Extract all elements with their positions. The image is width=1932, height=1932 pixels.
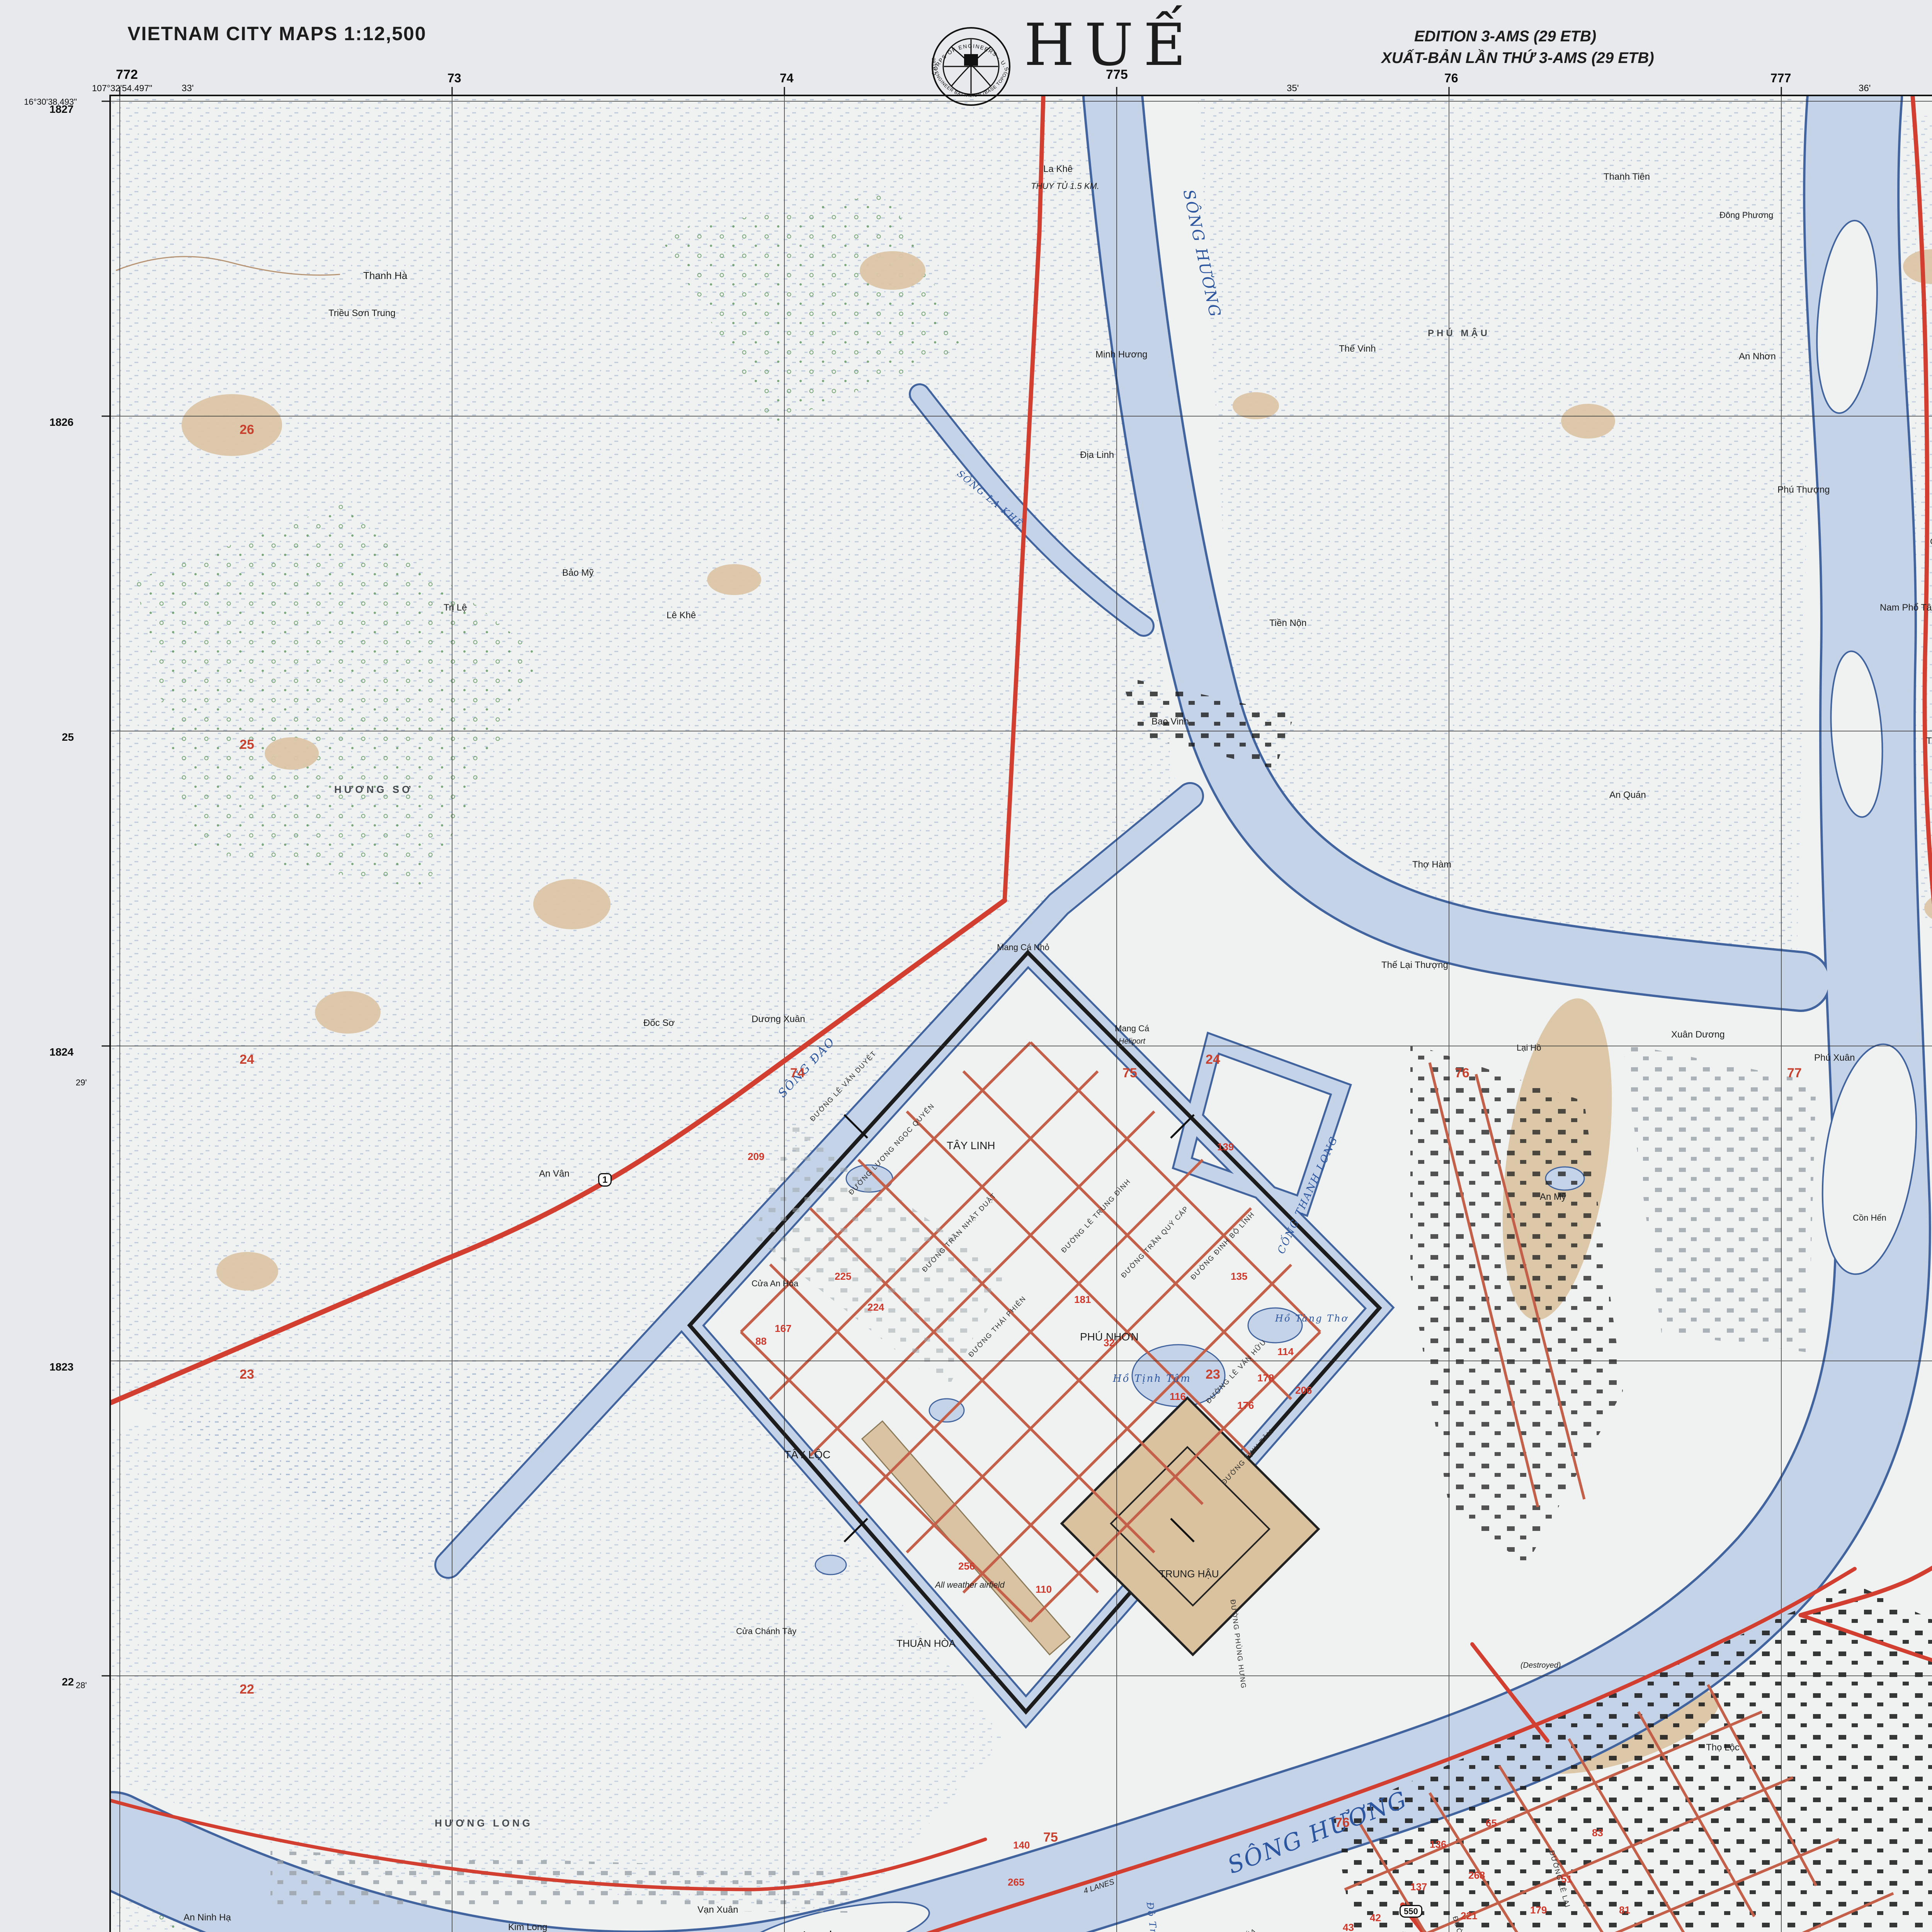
- map-label: 110: [1036, 1584, 1052, 1595]
- map-label: 76: [1455, 1066, 1469, 1080]
- map-label: TÂY LỘC: [784, 1449, 830, 1460]
- map-label: 36': [1859, 83, 1871, 93]
- map-label: 136: [1430, 1839, 1446, 1850]
- map-label: THUY TỦ 1.5 KM.: [1031, 182, 1099, 190]
- map-label: 65: [1486, 1818, 1497, 1828]
- map-label: 23: [240, 1368, 254, 1382]
- map-label: 74: [790, 1066, 805, 1080]
- map-label: An Vân: [539, 1169, 570, 1179]
- map-label: 225: [835, 1271, 851, 1282]
- map-label: HƯƠNG LONG: [435, 1818, 533, 1828]
- map-label: 77: [1787, 1066, 1802, 1080]
- map-label: 209: [748, 1151, 764, 1162]
- map-label: 76: [1335, 1816, 1350, 1830]
- map-label: 772: [116, 68, 138, 82]
- map-label: 51: [1561, 1874, 1572, 1884]
- map-label: Cửa Chánh Tây: [736, 1627, 796, 1636]
- map-label: HƯƠNG SƠ: [334, 784, 413, 795]
- map-label: Minh Hương: [1095, 350, 1148, 359]
- map-label: Thọ Lộc: [1706, 1743, 1740, 1752]
- map-label: 81: [1619, 1905, 1630, 1915]
- map-label: Thế Vinh: [1339, 344, 1376, 354]
- map-label: 1827: [49, 104, 73, 115]
- map-label: 777: [1770, 72, 1791, 85]
- map-label: Tây Thượng: [1926, 736, 1932, 746]
- map-label: 33': [182, 83, 194, 93]
- map-label: THUẬN HÒA: [896, 1638, 956, 1649]
- map-label: An Nhơn: [1739, 352, 1776, 361]
- map-label: TÂY LINH: [947, 1140, 995, 1151]
- map-label: Lại Hồ: [1517, 1043, 1541, 1052]
- map-label: 268: [1468, 1870, 1485, 1881]
- map-label: Dương Xuân: [752, 1014, 805, 1024]
- map-sheet: CORPS OF ENGINEERS · U.S. ARMY 29TH ENGI…: [0, 0, 1932, 1932]
- map-label: TRUNG HẬU: [1159, 1569, 1219, 1579]
- map-label: Thợ Hàm: [1412, 860, 1451, 869]
- map-label: 135: [1231, 1271, 1247, 1282]
- map-label: 176: [1237, 1400, 1254, 1411]
- map-label: 83: [1592, 1828, 1603, 1838]
- map-label: Phú Xuân: [1814, 1053, 1855, 1063]
- map-label: All weather airfield: [935, 1580, 1005, 1589]
- map-label: An Ninh Hạ: [184, 1913, 231, 1922]
- map-label: Cửa An Hòa: [752, 1279, 798, 1288]
- map-label: 1826: [49, 417, 73, 428]
- map-label: Xuân Dương: [1671, 1030, 1725, 1039]
- map-label: 32: [1104, 1338, 1115, 1348]
- map-label: Mang Cá: [1115, 1024, 1149, 1033]
- edition-note-vi: XUẤT-BẢN LẦN THỨ 3-AMS (29 ETB): [1381, 49, 1654, 67]
- map-label: 88: [755, 1336, 767, 1347]
- map-label: Tiền Nộn: [1269, 618, 1307, 628]
- map-label: Trị Lệ: [444, 603, 467, 612]
- map-label: 550: [1400, 1905, 1422, 1918]
- map-label: 29': [76, 1078, 87, 1087]
- map-label: 24: [240, 1053, 254, 1067]
- map-label: 24: [1206, 1053, 1220, 1067]
- map-label: La Khê: [1043, 164, 1073, 174]
- map-label: Đông Phương: [1719, 211, 1773, 219]
- map-label: 1824: [49, 1046, 73, 1058]
- map-label: 221: [1461, 1911, 1477, 1921]
- map-label: Kim Long: [508, 1922, 547, 1932]
- map-label: 265: [1008, 1877, 1024, 1888]
- map-label: 139: [1217, 1142, 1234, 1152]
- map-label: An Quán: [1609, 790, 1646, 800]
- map-label: 1823: [49, 1361, 73, 1372]
- map-label: Lê Khê: [667, 611, 696, 620]
- map-label: Vạn Xuân: [697, 1905, 738, 1915]
- map-label: 22: [62, 1676, 74, 1687]
- map-label: Mang Cá Nhỏ: [997, 943, 1049, 952]
- map-label: 114: [1277, 1347, 1294, 1357]
- sheet-series-title: VIETNAM CITY MAPS 1:12,500: [128, 22, 427, 45]
- map-label: 206: [1295, 1385, 1312, 1396]
- map-label: 75: [1122, 1066, 1137, 1080]
- map-label: 42: [1370, 1913, 1381, 1923]
- map-label: 75: [1043, 1831, 1058, 1845]
- map-label: 256: [958, 1561, 975, 1571]
- map-label: 137: [1410, 1882, 1427, 1892]
- map-label: Bảo Mỹ: [562, 568, 594, 578]
- map-label: Nam Phổ Tây: [1880, 603, 1932, 612]
- map-label: 26: [240, 423, 254, 437]
- map-label: 35': [1287, 83, 1299, 93]
- map-label: Thế Lại Thượng: [1381, 960, 1448, 970]
- map-graphics: CORPS OF ENGINEERS · U.S. ARMY 29TH ENGI…: [0, 0, 1932, 1932]
- map-label: 775: [1106, 68, 1128, 82]
- map-label: 116: [1170, 1391, 1186, 1402]
- map-label: Hồ Tàng Thơ: [1275, 1314, 1348, 1323]
- map-label: 25: [62, 731, 74, 743]
- map-label: Hồ Tịnh Tâm: [1113, 1374, 1191, 1384]
- map-label: Thanh Tiên: [1604, 172, 1650, 182]
- map-label: Phú Thượng: [1777, 485, 1830, 495]
- map-label: 178: [1257, 1373, 1274, 1383]
- map-label: PHÚ MẬU: [1428, 328, 1490, 338]
- map-label: Địa Linh: [1080, 450, 1114, 460]
- map-label: Chợ Mai: [1930, 537, 1932, 546]
- map-label: 107°32'54.497": [92, 83, 152, 93]
- map-label: 28': [76, 1681, 87, 1690]
- map-label: 73: [447, 72, 461, 85]
- map-label: Bao Vinh: [1151, 717, 1189, 726]
- map-label: 74: [780, 72, 794, 85]
- map-label: 181: [1074, 1294, 1091, 1305]
- map-label: 76: [1444, 72, 1458, 85]
- map-label: Heliport: [1119, 1037, 1145, 1046]
- map-label: Cồn Hến: [1853, 1213, 1886, 1222]
- map-label: Đốc Sơ: [643, 1018, 675, 1028]
- map-label: 167: [775, 1323, 791, 1334]
- map-label: 43: [1343, 1922, 1354, 1932]
- edition-note-en: EDITION 3-AMS (29 ETB): [1414, 28, 1596, 45]
- map-label: Triều Sơn Trung: [328, 308, 396, 318]
- map-label: 140: [1013, 1840, 1030, 1850]
- map-label: An Mỹ: [1540, 1192, 1566, 1202]
- map-label: 179: [1530, 1905, 1547, 1915]
- map-label: 22: [240, 1683, 254, 1697]
- map-label: (Destroyed): [1520, 1662, 1561, 1670]
- map-label: 23: [1206, 1368, 1220, 1382]
- map-label: Thanh Hà: [363, 270, 407, 281]
- map-label: 25: [240, 738, 254, 752]
- map-label: 224: [867, 1302, 884, 1313]
- map-label: 1: [598, 1173, 612, 1187]
